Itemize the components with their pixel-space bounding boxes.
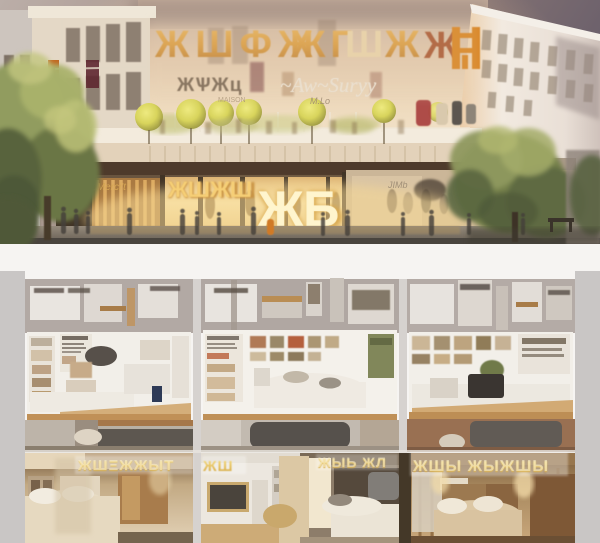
svg-text:ЖШΞЖЖЫТ: ЖШΞЖЖЫТ [77, 457, 174, 474]
svg-text:MAISON: MAISON [218, 97, 246, 104]
svg-text:ЖЫЬ ЖЛ: ЖЫЬ ЖЛ [317, 454, 387, 470]
svg-text:ЖШЫ ЖЫЖШЫ: ЖШЫ ЖЫЖШЫ [412, 458, 549, 475]
svg-text:ЖШ: ЖШ [202, 458, 234, 475]
svg-text:JIMb: JIMb [387, 180, 408, 190]
svg-text:ЖШЖШ: ЖШЖШ [167, 177, 252, 202]
